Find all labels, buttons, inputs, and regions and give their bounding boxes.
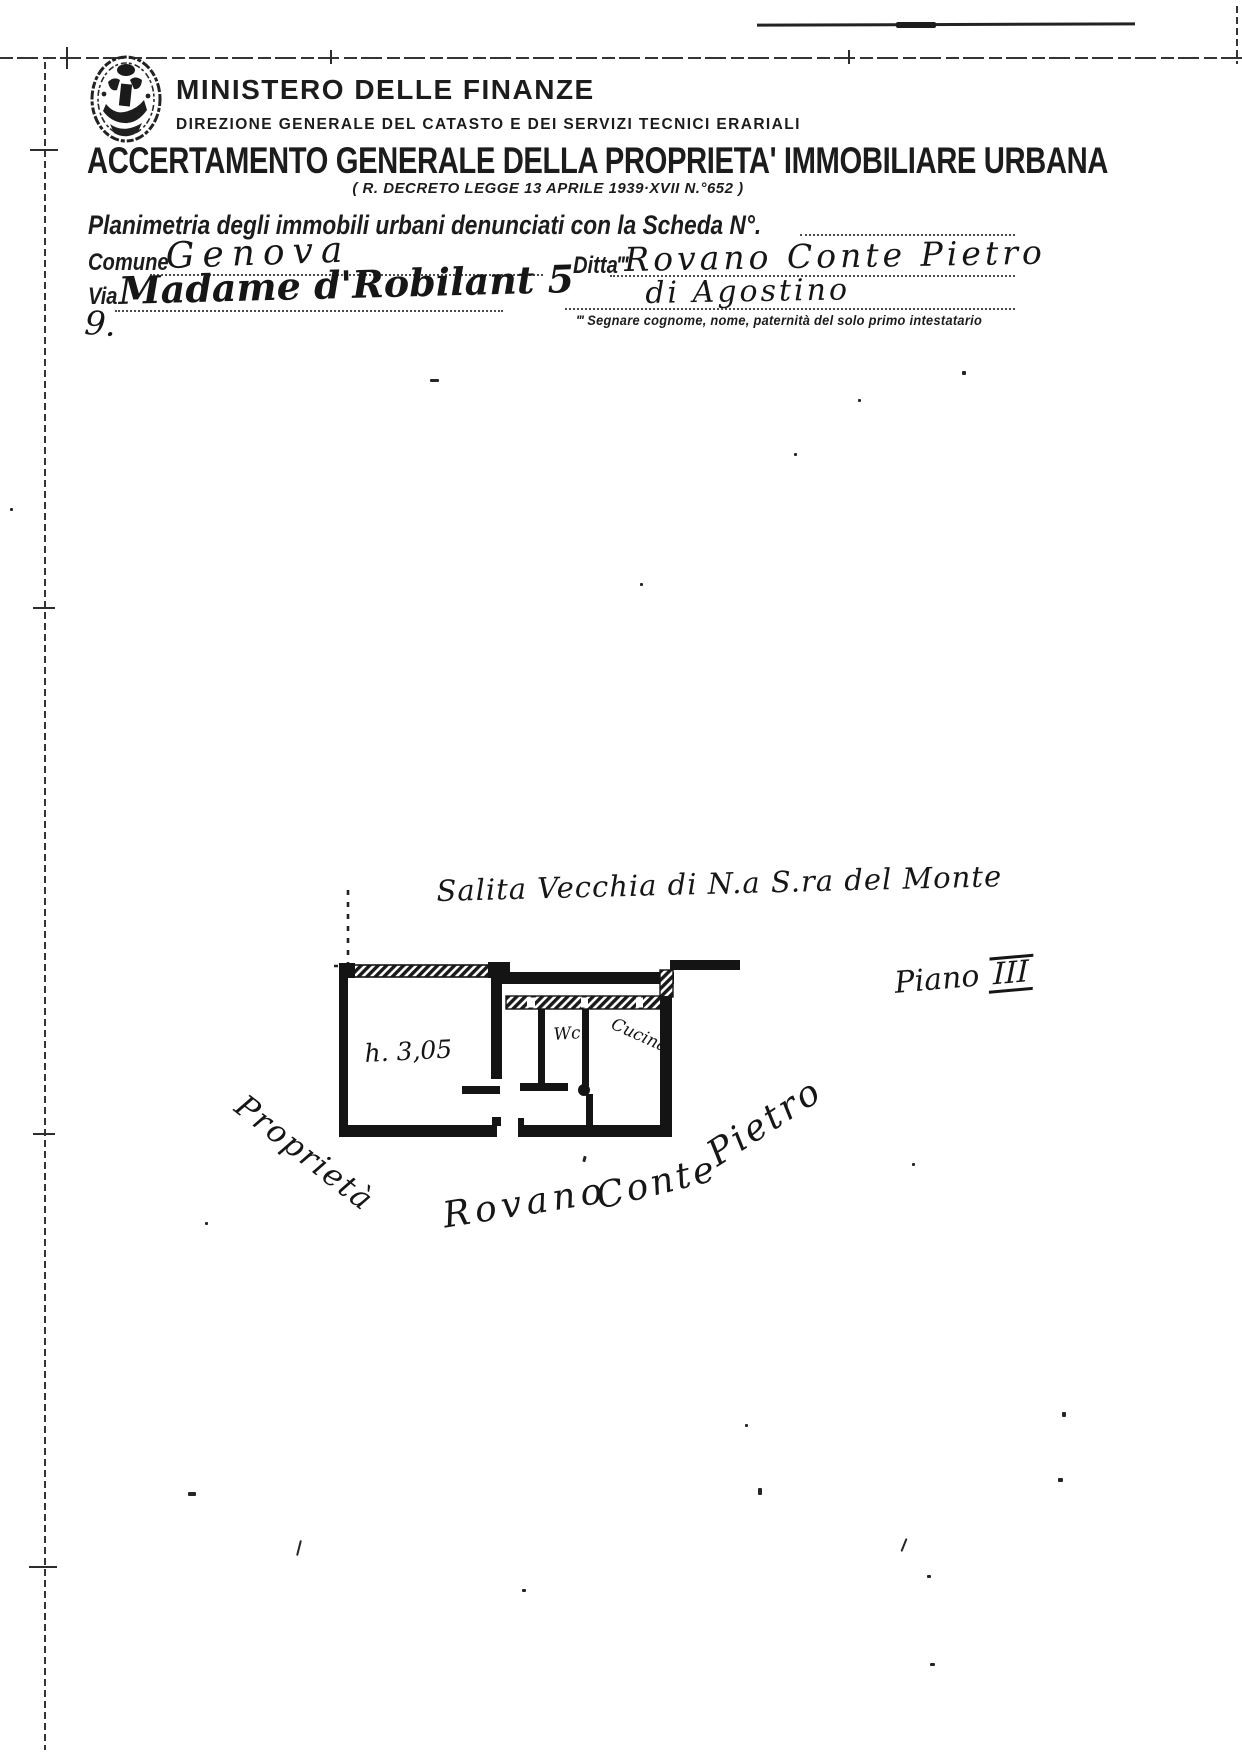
paternita-fill-line: [565, 308, 1015, 310]
owner-name-conte: Conte: [592, 1148, 721, 1218]
scanned-document-page: MINISTERO DELLE FINANZE DIREZIONE GENERA…: [0, 0, 1242, 1753]
margin-tick: [33, 1133, 55, 1135]
rule-tick-right: [1236, 6, 1238, 64]
rule-tick: [66, 47, 68, 69]
document-title: ACCERTAMENTO GENERALE DELLA PROPRIETA' I…: [87, 140, 1108, 182]
scan-streak: [757, 22, 1135, 26]
rule-tick: [330, 50, 332, 64]
floor-note: Piano III: [893, 954, 1034, 1002]
ditta-paternita-value: di Agostino: [645, 272, 850, 311]
margin-line-left: [44, 62, 46, 1750]
rule-tick: [848, 50, 850, 64]
via-fill-line: [115, 310, 503, 312]
plan-labels: h. 3,05 Wc Cucina: [364, 1014, 671, 1068]
ministry-name: MINISTERO DELLE FINANZE: [176, 74, 595, 106]
stray-pen-mark: 9.: [83, 303, 117, 344]
decree-line: ( R. DECRETO LEGGE 13 APRILE 1939·XVII N…: [88, 180, 1008, 197]
floor-label: Piano: [893, 959, 981, 1001]
scan-streak-blob: [896, 22, 936, 28]
state-emblem-icon: [86, 54, 166, 146]
direction-line: DIREZIONE GENERALE DEL CATASTO E DEI SER…: [176, 116, 801, 134]
registration-rule-top: [0, 57, 1242, 59]
room-height-label: h. 3,05: [364, 1034, 453, 1068]
wc-label: Wc: [553, 1023, 582, 1045]
floor-plan: h. 3,05 Wc Cucina: [330, 850, 770, 1150]
margin-tick: [33, 607, 55, 609]
plan-boundary-dashes: [330, 890, 348, 966]
owner-name-rovano: Rovano: [440, 1170, 610, 1236]
margin-tick: [30, 149, 58, 151]
floor-value: III: [989, 954, 1033, 994]
margin-tick: [29, 1566, 57, 1568]
footnote: ‴ Segnare cognome, nome, paternità del s…: [577, 313, 982, 328]
